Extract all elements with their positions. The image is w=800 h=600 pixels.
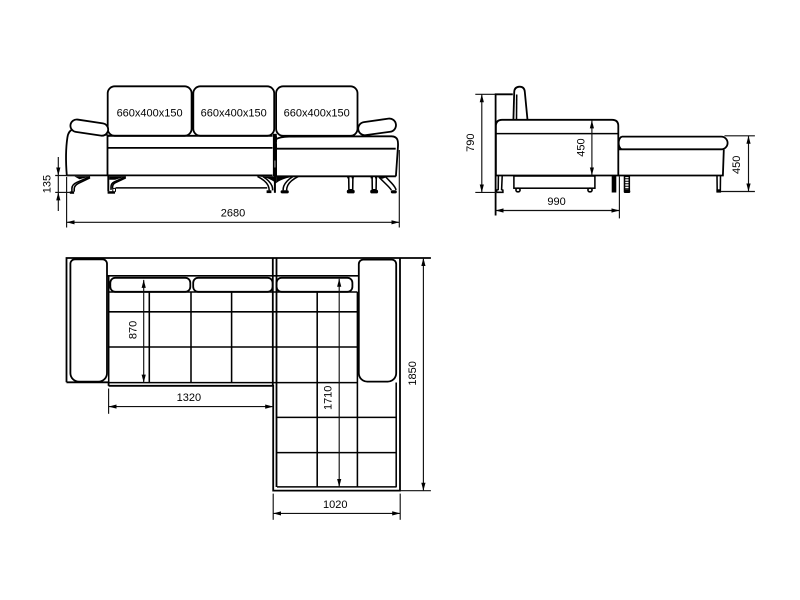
svg-text:1850: 1850 — [407, 361, 419, 385]
svg-text:1710: 1710 — [323, 386, 335, 410]
svg-text:660x400x150: 660x400x150 — [284, 107, 350, 119]
svg-text:660x400x150: 660x400x150 — [201, 107, 267, 119]
svg-text:790: 790 — [465, 134, 477, 152]
svg-text:1020: 1020 — [323, 499, 347, 511]
svg-text:2680: 2680 — [221, 208, 245, 220]
svg-text:990: 990 — [547, 196, 565, 208]
svg-text:660x400x150: 660x400x150 — [117, 107, 183, 119]
svg-text:135: 135 — [42, 175, 54, 193]
svg-text:450: 450 — [576, 138, 588, 156]
svg-text:450: 450 — [731, 156, 743, 174]
svg-text:870: 870 — [127, 321, 139, 339]
svg-text:1320: 1320 — [177, 392, 201, 404]
